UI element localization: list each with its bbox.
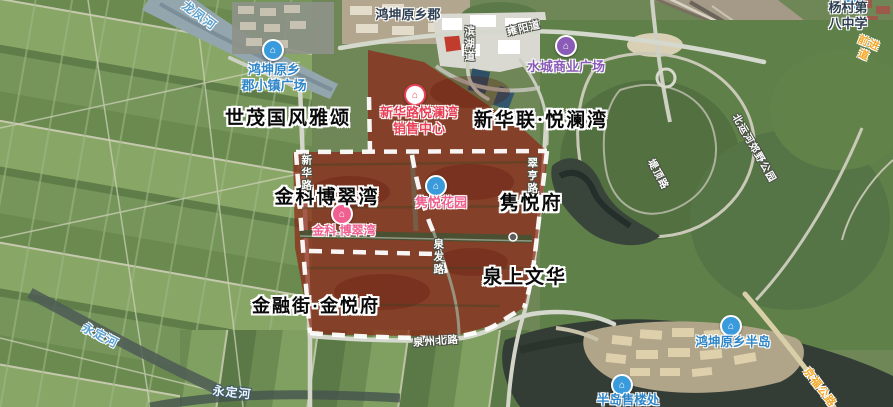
- poi-label-town-plaza[interactable]: 鸿坤原乡 郡小镇广场: [241, 62, 306, 95]
- poi-label-junyue-garden[interactable]: 隽悦花园: [415, 195, 467, 211]
- poi-label-hongkun-yuanxiangjun[interactable]: 鸿坤原乡郡: [375, 7, 440, 23]
- poi-label-water-city-mall[interactable]: 水城商业广场: [527, 59, 605, 75]
- satellite-map-canvas[interactable]: ⌂ ⌂ ⌂ ⌂ ⌂ ⌂ ⌂ ⌂ 鸿坤原乡郡 杨村第八中学 鸿坤原乡 郡小镇广场 …: [0, 0, 893, 407]
- annotation-shimao-guofeng-yasong: 世茂国风雅颂: [225, 107, 351, 131]
- mall-marker-icon[interactable]: ⌂: [555, 35, 577, 57]
- annotation-junyuefu: 隽悦府: [499, 192, 562, 216]
- peninsula-marker-icon[interactable]: ⌂: [720, 315, 742, 337]
- annotation-jinke-bocuiwan: 金科博翠湾: [274, 186, 379, 210]
- poi-label-jinke-bocuiwan[interactable]: 金科.博翠湾: [312, 224, 375, 239]
- road-label-xinhua-lu: 新华路: [301, 154, 312, 192]
- plaza-marker-icon[interactable]: ⌂: [262, 39, 284, 61]
- poi-label-yangcun-no8-school[interactable]: 杨村第八中学: [826, 0, 871, 32]
- annotation-xinhualian-yuelanwan: 新华联·悦澜湾: [474, 109, 608, 133]
- road-label-quanfa-lu: 泉发路: [433, 238, 444, 276]
- poi-label-sales-center[interactable]: 新华路悦澜湾 销售中心: [380, 105, 458, 138]
- annotation-quanshang-wenhua: 泉上文华: [483, 266, 567, 290]
- annotation-jinrongjie-jinyuefu: 金融街·金悦府: [252, 295, 380, 318]
- poi-label-peninsula-sales[interactable]: 半岛售楼处: [597, 393, 660, 407]
- road-label-cuiheng-lu: 翠亨路: [527, 157, 538, 195]
- road-label-binhu-dao: 滨湖道: [464, 25, 475, 63]
- sales-office-marker-icon[interactable]: ⌂: [404, 84, 426, 106]
- poi-label-peninsula[interactable]: 鸿坤原乡半岛: [695, 335, 770, 351]
- minor-poi-dot[interactable]: [509, 233, 517, 241]
- garden-marker-icon[interactable]: ⌂: [425, 175, 447, 197]
